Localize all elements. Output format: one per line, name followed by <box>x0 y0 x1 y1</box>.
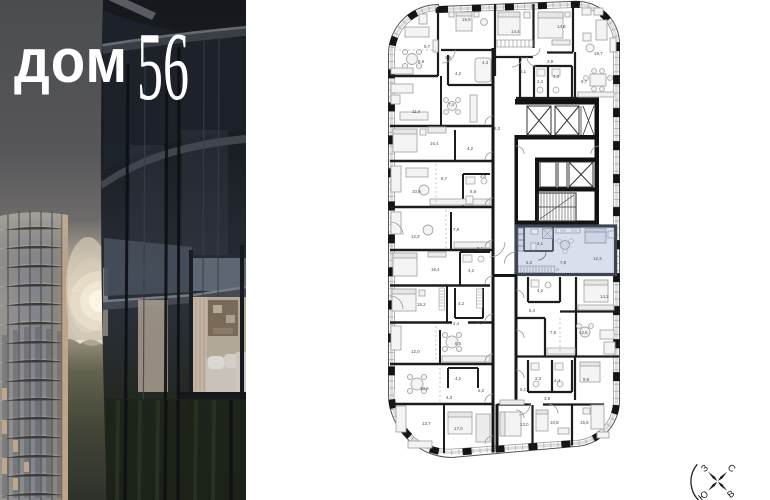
svg-text:15,2: 15,2 <box>417 302 426 307</box>
svg-text:7,8: 7,8 <box>550 330 557 335</box>
svg-text:5,2: 5,2 <box>478 388 485 393</box>
svg-text:5,8: 5,8 <box>470 189 477 194</box>
svg-text:4,2: 4,2 <box>458 301 465 306</box>
svg-text:4,3: 4,3 <box>482 60 489 65</box>
svg-text:14,8: 14,8 <box>557 24 566 29</box>
svg-text:Ю: Ю <box>697 489 712 500</box>
svg-text:12,3: 12,3 <box>593 256 602 261</box>
svg-text:4,4: 4,4 <box>554 378 561 383</box>
svg-text:В: В <box>725 488 737 500</box>
svg-text:3,9: 3,9 <box>544 396 551 401</box>
svg-text:5,1: 5,1 <box>520 387 527 392</box>
svg-text:3,6: 3,6 <box>445 55 452 60</box>
svg-text:15,4: 15,4 <box>431 267 440 272</box>
svg-text:9,9: 9,9 <box>583 377 590 382</box>
svg-text:6,4: 6,4 <box>529 308 536 313</box>
svg-text:4,1: 4,1 <box>537 241 544 246</box>
svg-text:15,4: 15,4 <box>430 141 439 146</box>
svg-text:С: С <box>725 462 737 475</box>
svg-text:8,5: 8,5 <box>455 341 462 346</box>
svg-text:5,1: 5,1 <box>520 69 527 74</box>
svg-text:7,8: 7,8 <box>560 260 567 265</box>
svg-text:13,7: 13,7 <box>422 421 431 426</box>
svg-text:5,2: 5,2 <box>526 260 533 265</box>
svg-text:7,4: 7,4 <box>448 102 455 107</box>
svg-text:15,8: 15,8 <box>580 420 589 425</box>
svg-text:4,3: 4,3 <box>446 395 453 400</box>
svg-text:2,3: 2,3 <box>535 376 542 381</box>
svg-text:10,6: 10,6 <box>420 386 429 391</box>
svg-text:8,7: 8,7 <box>441 176 448 181</box>
svg-text:9,7: 9,7 <box>424 44 431 49</box>
svg-text:10,9: 10,9 <box>412 189 421 194</box>
svg-text:11,4: 11,4 <box>412 109 421 114</box>
svg-text:4,3: 4,3 <box>477 320 484 325</box>
svg-text:12,3: 12,3 <box>411 234 420 239</box>
svg-text:10,8: 10,8 <box>550 420 559 425</box>
svg-text:4,2: 4,2 <box>455 71 462 76</box>
svg-text:19,7: 19,7 <box>594 51 603 56</box>
svg-text:4,0: 4,0 <box>480 174 487 179</box>
svg-text:2,4: 2,4 <box>453 321 460 326</box>
svg-text:14,2: 14,2 <box>600 294 609 299</box>
svg-text:7,8: 7,8 <box>453 227 460 232</box>
svg-text:56: 56 <box>137 13 189 121</box>
svg-text:14,4: 14,4 <box>511 29 520 34</box>
svg-text:дом: дом <box>14 27 128 96</box>
svg-text:17,0: 17,0 <box>454 426 463 431</box>
svg-text:4,2: 4,2 <box>455 376 462 381</box>
svg-text:13,0: 13,0 <box>520 422 529 427</box>
svg-text:4,2: 4,2 <box>467 146 474 151</box>
svg-text:4,2: 4,2 <box>468 268 475 273</box>
svg-text:12,0: 12,0 <box>411 349 420 354</box>
svg-text:12,6: 12,6 <box>579 330 588 335</box>
svg-text:15,9: 15,9 <box>462 17 471 22</box>
svg-text:2,4: 2,4 <box>537 79 544 84</box>
svg-text:8,3: 8,3 <box>494 126 501 131</box>
svg-text:9,1: 9,1 <box>477 246 484 251</box>
svg-text:4,3: 4,3 <box>553 74 560 79</box>
svg-text:3,9: 3,9 <box>547 59 554 64</box>
svg-text:4,2: 4,2 <box>537 288 544 293</box>
svg-text:9,7: 9,7 <box>581 79 588 84</box>
svg-text:8,9: 8,9 <box>418 59 425 64</box>
